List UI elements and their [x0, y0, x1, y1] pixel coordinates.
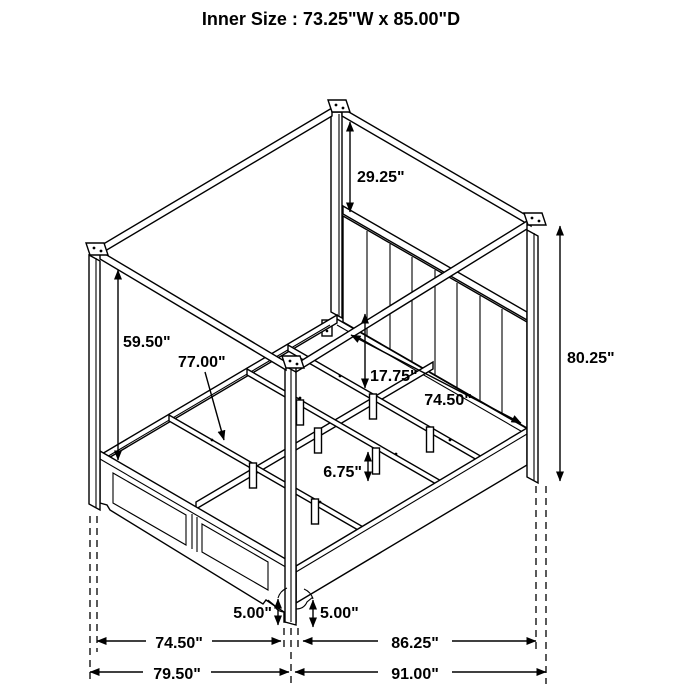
dim-left-post-exposed: 59.50" — [123, 334, 171, 351]
bed-dimension-drawing: 29.25" 59.50" 77.00" 17.75" 74.50" 80.25… — [0, 0, 700, 700]
dim-overall-width: 79.50" — [153, 666, 201, 683]
dim-siderail-span: 86.25" — [391, 635, 439, 652]
dimension-row-inner: 74.50" 86.25" — [97, 635, 536, 652]
canopy-rail-back-left — [100, 108, 332, 254]
left-post — [89, 255, 100, 510]
slat-screw-dots — [211, 375, 452, 504]
right-side-rail — [296, 428, 527, 603]
dim-platform-height: 17.75" — [370, 368, 418, 385]
dim-overall-depth: 91.00" — [391, 666, 439, 683]
dim-footboard-span: 74.50" — [155, 635, 203, 652]
canopy-rail-back-right — [342, 108, 531, 226]
dim-overall-height: 80.25" — [567, 350, 615, 367]
back-post — [322, 112, 342, 336]
dim-foot-bracket-left: 5.00" — [233, 605, 272, 622]
dim-support-leg-height: 6.75" — [323, 464, 362, 481]
page-title: Inner Size : 73.25"W x 85.00"D — [202, 9, 460, 29]
dimension-diagram-page: 29.25" 59.50" 77.00" 17.75" 74.50" 80.25… — [0, 0, 700, 700]
dimension-row-overall: 79.50" 91.00" — [90, 666, 546, 683]
dim-headboard-inner-width: 74.50" — [424, 392, 472, 409]
dim-headboard-to-canopy: 29.25" — [357, 169, 405, 186]
dim-slat-length: 77.00" — [178, 354, 226, 371]
dim-foot-bracket-right: 5.00" — [320, 605, 359, 622]
right-post — [527, 230, 538, 483]
canopy-rail-front-left — [100, 251, 286, 370]
